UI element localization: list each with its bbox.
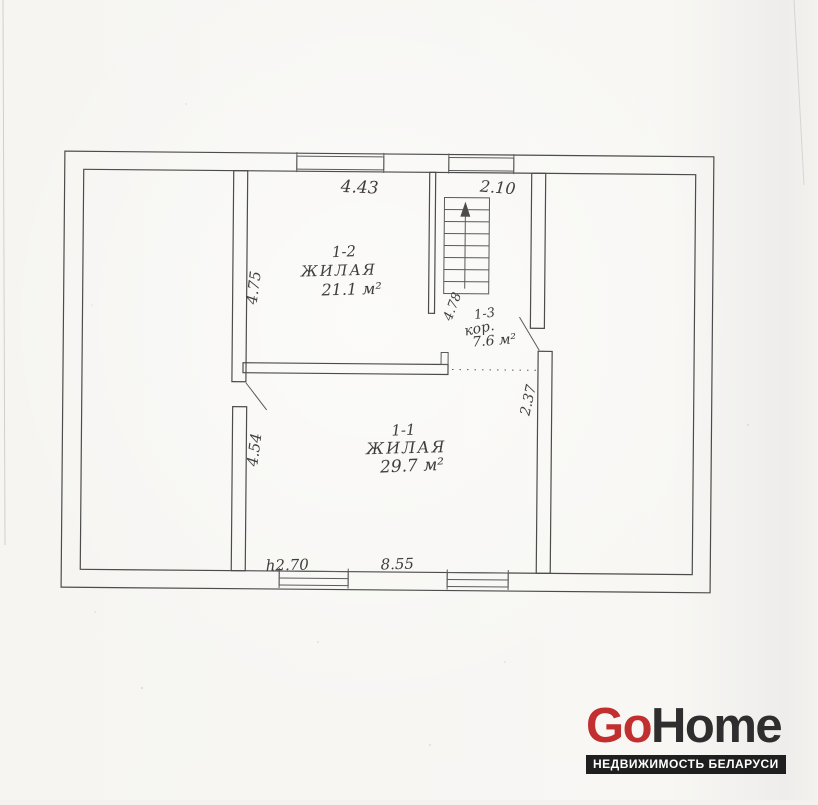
- dimension-room1-left-depth: 4.54: [243, 432, 265, 468]
- dimension-room2-width: 4.43: [339, 177, 379, 199]
- gohome-logo: GoHome НЕДВИЖИМОСТЬ БЕЛАРУСИ: [586, 702, 786, 774]
- stairs: [444, 197, 490, 293]
- dimension-ceiling-height: h2.70: [265, 556, 309, 575]
- door-swing-room-1-1: [246, 383, 267, 410]
- room-1-2-name: ЖИЛАЯ: [300, 261, 377, 281]
- wall-left-divider-lower: [231, 407, 246, 571]
- room-1-3-area: 7.6 м²: [472, 331, 517, 350]
- wall-corridor-upper: [530, 173, 545, 328]
- dimension-stair-bay-width: 2.10: [478, 176, 516, 198]
- floor-plan-drawing: 4.43 2.10 1-2 ЖИЛАЯ 21.1 м² 4.75 4.78 1-…: [0, 0, 818, 800]
- room-1-2-area: 21.1 м²: [320, 279, 382, 300]
- window-bottom-right: [447, 570, 508, 591]
- door-swing-corridor: [519, 317, 539, 350]
- stair-treads: [444, 209, 490, 281]
- logo-tagline: НЕДВИЖИМОСТЬ БЕЛАРУСИ: [586, 755, 786, 774]
- inner-wall: [80, 169, 695, 574]
- room-1-2-number: 1-2: [331, 242, 356, 261]
- door-opening-dashed: [452, 370, 536, 371]
- page-edge-right: [794, 0, 804, 185]
- wall-horizontal-divider: [243, 363, 448, 375]
- stairs-direction-arrow: [465, 213, 466, 289]
- dimension-stairs-length: 4.78: [441, 291, 466, 324]
- wall-corridor-lower: [536, 351, 552, 573]
- logo-text-go: Go: [586, 699, 651, 753]
- scanned-floor-plan-page: 4.43 2.10 1-2 ЖИЛАЯ 21.1 м² 4.75 4.78 1-…: [0, 0, 818, 800]
- window-top-right: [449, 154, 514, 175]
- logo-text-home: Home: [651, 699, 781, 753]
- gohome-logo-word: GoHome: [586, 702, 786, 751]
- door-jamb: [441, 352, 448, 364]
- dimension-room1-right-depth: 2.37: [517, 383, 540, 418]
- page-edge-left: [3, 0, 5, 545]
- outer-wall: [61, 151, 714, 593]
- paper-specks: [91, 103, 749, 746]
- room-1-1-number: 1-1: [391, 421, 416, 440]
- window-top-left: [297, 152, 384, 173]
- dimension-room1-width: 8.55: [380, 555, 414, 574]
- room-1-1-area: 29.7 м²: [379, 455, 445, 478]
- dimension-room2-depth: 4.75: [242, 270, 264, 306]
- wall-stairs-left: [428, 172, 435, 313]
